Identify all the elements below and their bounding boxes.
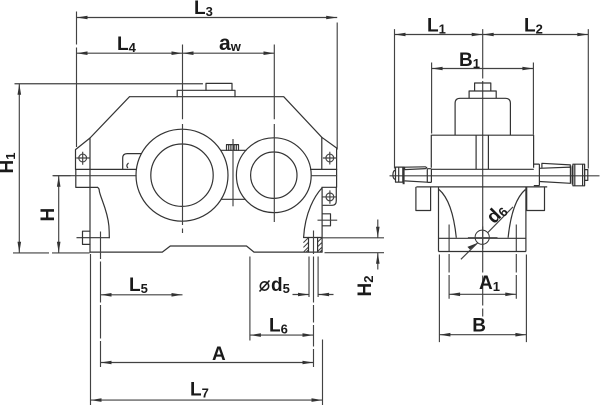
svg-text:H1: H1 <box>0 153 18 174</box>
svg-text:d6: d6 <box>483 200 511 228</box>
svg-text:B: B <box>472 316 486 337</box>
svg-text:A: A <box>212 344 226 365</box>
svg-text:L3: L3 <box>194 0 213 19</box>
svg-text:L6: L6 <box>269 316 288 337</box>
svg-text:L2: L2 <box>524 16 543 37</box>
svg-text:L1: L1 <box>427 16 446 37</box>
svg-text:H2: H2 <box>355 276 376 297</box>
svg-text:d5: d5 <box>271 275 290 296</box>
svg-text:aw: aw <box>219 32 242 55</box>
svg-text:L7: L7 <box>190 380 209 401</box>
svg-text:H: H <box>38 208 59 222</box>
svg-text:L5: L5 <box>129 275 148 296</box>
svg-text:L4: L4 <box>117 34 137 55</box>
svg-text:A1: A1 <box>479 273 500 294</box>
svg-text:B1: B1 <box>459 50 480 71</box>
